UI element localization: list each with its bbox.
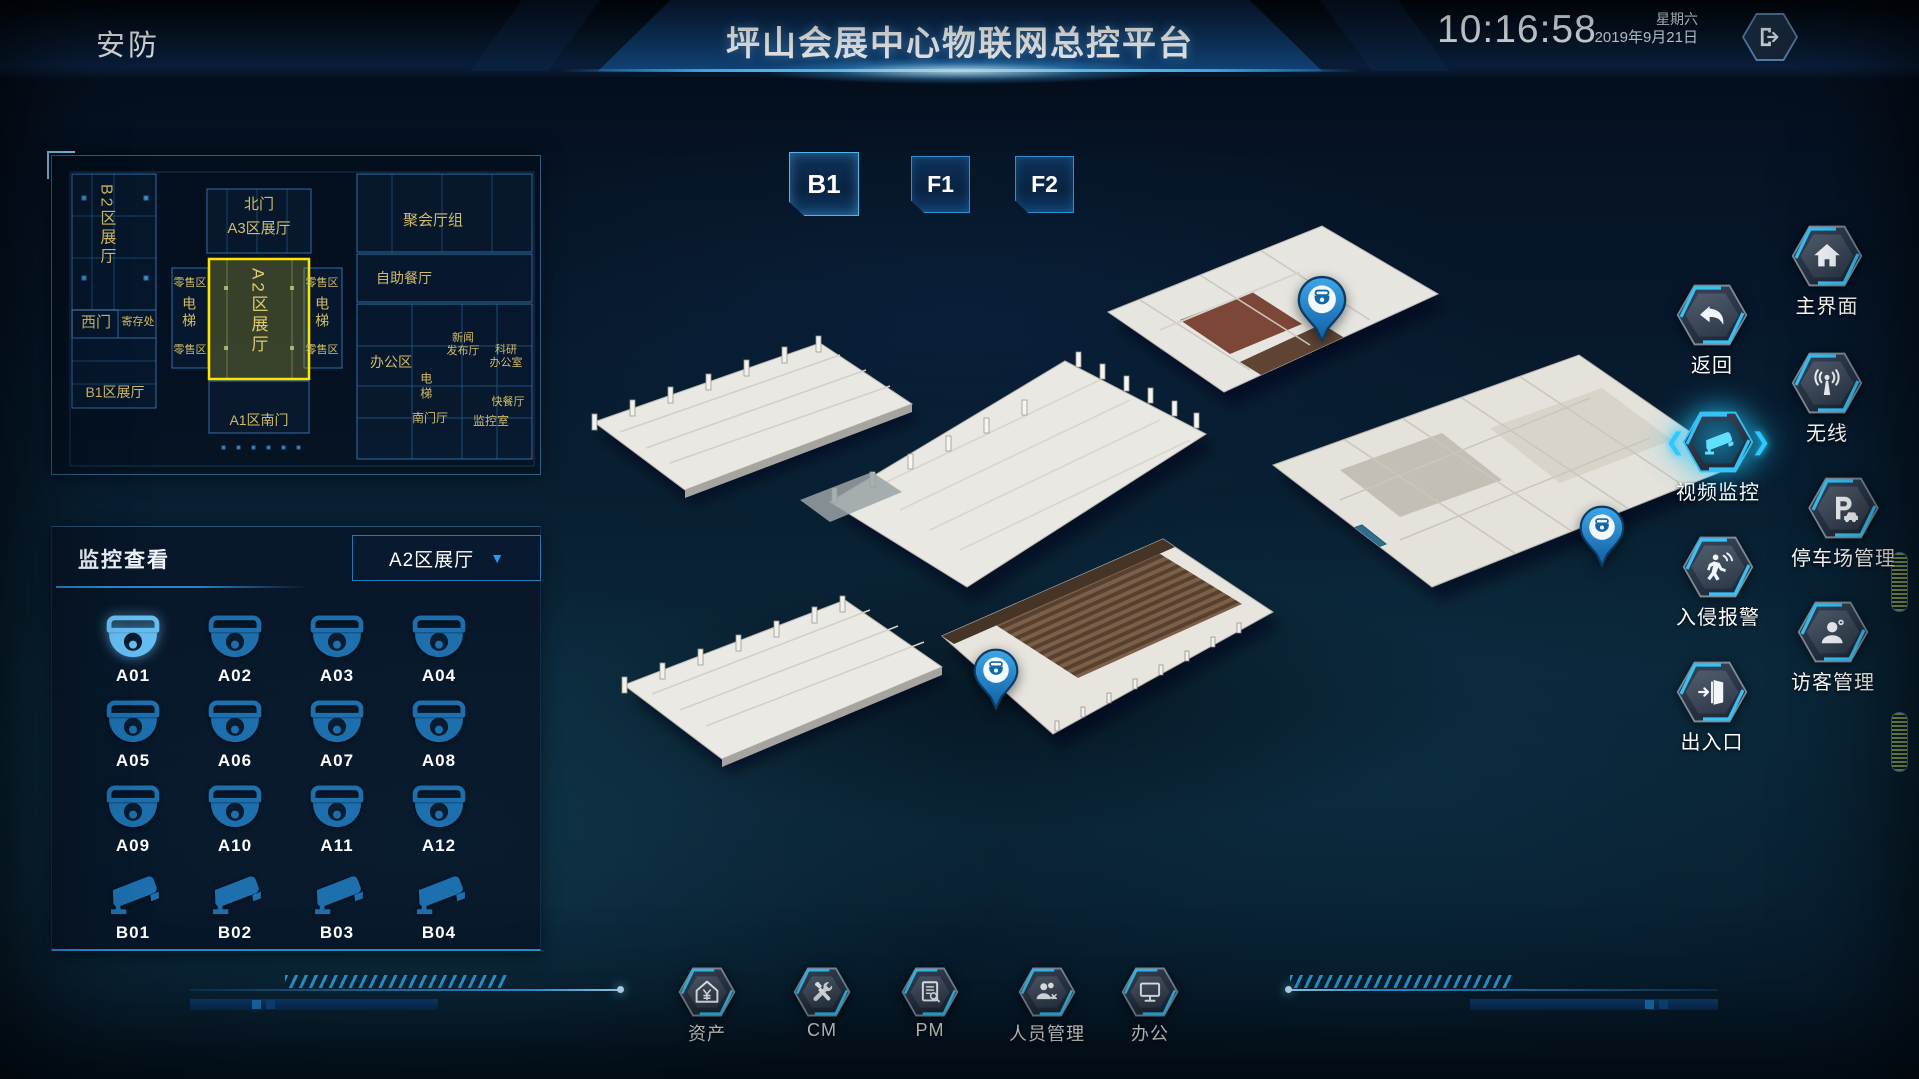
camera-item[interactable]: A04 <box>388 615 490 700</box>
dome-camera-icon <box>208 615 262 659</box>
camera-item[interactable]: A02 <box>184 615 286 700</box>
dome-camera-icon <box>412 700 466 744</box>
menu-main-screen[interactable]: 主界面 <box>1791 225 1863 319</box>
menu-entrance-exit[interactable]: 出入口 <box>1676 661 1748 755</box>
dome-camera-icon <box>106 615 160 659</box>
floorplan-drawing <box>52 156 540 472</box>
clock-time: 10:16:58 <box>1437 8 1597 52</box>
camera-item[interactable]: A06 <box>184 700 286 785</box>
floor-button-b1[interactable]: B1 <box>789 152 859 216</box>
floor-button-f1[interactable]: F1 <box>911 156 970 213</box>
door-icon <box>1696 676 1728 708</box>
decoration-square <box>252 1000 261 1009</box>
decoration-line-right <box>1288 989 1718 991</box>
header-bar: 安防 坪山会展中心物联网总控平台 10:16:58 星期六 2019年9月21日 <box>0 0 1919 78</box>
chevron-left-icon: ❮ <box>1665 428 1685 457</box>
camera-item[interactable]: B01 <box>82 870 184 955</box>
wireless-icon <box>1811 367 1843 399</box>
clock-day: 2019年9月21日 <box>1580 29 1698 48</box>
page-title: 坪山会展中心物联网总控平台 <box>660 16 1260 65</box>
header-slant-right <box>1320 0 1450 71</box>
floorplan-minimap[interactable]: B2区展厅 北门 A3区展厅 聚会厅组 西门 寄存处 B1区展厅 A2区展厅 A… <box>51 155 541 475</box>
dome-camera-icon <box>412 785 466 829</box>
dome-camera-icon <box>412 615 466 659</box>
camera-item[interactable]: A11 <box>286 785 388 870</box>
chevron-right-icon: ❯ <box>1751 428 1771 457</box>
dome-camera-icon <box>106 700 160 744</box>
menu-pm[interactable]: PM <box>901 967 959 1041</box>
decoration-bar-right <box>1470 999 1718 1010</box>
camera-item[interactable]: A05 <box>82 700 184 785</box>
logout-button[interactable] <box>1742 13 1798 61</box>
tools-icon <box>809 979 835 1005</box>
cctv-icon <box>1701 427 1735 457</box>
bullet-camera-icon <box>410 870 468 916</box>
menu-back[interactable]: 返回 <box>1676 284 1748 378</box>
map-camera-pin[interactable] <box>1579 505 1625 568</box>
camera-item[interactable]: B03 <box>286 870 388 955</box>
dome-camera-icon <box>310 785 364 829</box>
camera-item[interactable]: A01 <box>82 615 184 700</box>
people-icon <box>1034 979 1060 1005</box>
menu-parking-management[interactable]: 停车场管理 <box>1791 477 1896 571</box>
floor-button-f2[interactable]: F2 <box>1015 156 1074 213</box>
camera-item[interactable]: B02 <box>184 870 286 955</box>
camera-item[interactable]: A09 <box>82 785 184 870</box>
decoration-dot-left <box>617 986 624 993</box>
office-icon <box>1137 979 1163 1005</box>
camera-grid: A01 A02 A03 A04 A05 A06 A07 A08 A09 A10 … <box>82 615 490 955</box>
dome-camera-icon <box>208 700 262 744</box>
camera-item[interactable]: B04 <box>388 870 490 955</box>
area-dropdown[interactable]: A2区展厅 ▼ <box>352 535 541 581</box>
decoration-square <box>1645 1000 1654 1009</box>
clock-weekday: 星期六 <box>1580 11 1698 29</box>
edge-meter <box>1891 712 1908 772</box>
report-icon <box>917 979 943 1005</box>
home-icon <box>1811 240 1843 272</box>
menu-personnel-management[interactable]: 人员管理 <box>1009 967 1085 1046</box>
menu-cm[interactable]: CM <box>793 967 851 1041</box>
bullet-camera-icon <box>104 870 162 916</box>
header-slant-left <box>470 0 600 71</box>
decoration-line-left <box>190 989 620 991</box>
map-camera-pin[interactable] <box>1297 275 1347 344</box>
bullet-camera-icon <box>206 870 264 916</box>
dome-camera-icon <box>310 700 364 744</box>
dome-camera-icon <box>106 785 160 829</box>
dome-camera-icon <box>208 785 262 829</box>
menu-intrusion-alarm[interactable]: 入侵报警 <box>1676 536 1760 630</box>
menu-office[interactable]: 办公 <box>1121 967 1179 1046</box>
decoration-dot-right <box>1285 986 1292 993</box>
header-glow-line <box>560 69 1360 72</box>
monitor-title-underline <box>56 586 308 588</box>
visitor-icon <box>1817 616 1849 648</box>
decoration-hatch-right <box>1290 975 1512 988</box>
menu-video-surveillance[interactable]: ❮ ❯ 视频监控 <box>1676 411 1760 505</box>
asset-icon <box>694 979 720 1005</box>
menu-assets[interactable]: 资产 <box>678 967 736 1046</box>
map-camera-pin[interactable] <box>973 648 1019 711</box>
intrusion-icon <box>1702 551 1734 583</box>
area-dropdown-value: A2区展厅 <box>389 545 474 572</box>
security-dashboard: 安防 坪山会展中心物联网总控平台 10:16:58 星期六 2019年9月21日… <box>0 0 1919 1079</box>
bullet-camera-icon <box>308 870 366 916</box>
decoration-square <box>266 1000 275 1009</box>
decoration-hatch-left <box>285 975 507 988</box>
menu-visitor-management[interactable]: 访客管理 <box>1791 601 1875 695</box>
decoration-square <box>1659 1000 1668 1009</box>
camera-item[interactable]: A12 <box>388 785 490 870</box>
camera-item[interactable]: A07 <box>286 700 388 785</box>
camera-item[interactable]: A08 <box>388 700 490 785</box>
clock-date: 星期六 2019年9月21日 <box>1580 11 1698 47</box>
logout-icon <box>1758 26 1782 48</box>
menu-wireless[interactable]: 无线 <box>1791 352 1863 446</box>
decoration-bar-left <box>190 999 438 1010</box>
monitor-panel-title: 监控查看 <box>78 544 170 574</box>
dome-camera-icon <box>310 615 364 659</box>
monitor-panel: 监控查看 A2区展厅 ▼ A01 A02 A03 A04 A05 A06 A07… <box>51 526 541 951</box>
camera-item[interactable]: A10 <box>184 785 286 870</box>
camera-item[interactable]: A03 <box>286 615 388 700</box>
chevron-down-icon: ▼ <box>490 550 504 566</box>
back-icon <box>1696 299 1728 331</box>
parking-icon <box>1828 492 1860 524</box>
module-title: 安防 <box>96 22 160 64</box>
